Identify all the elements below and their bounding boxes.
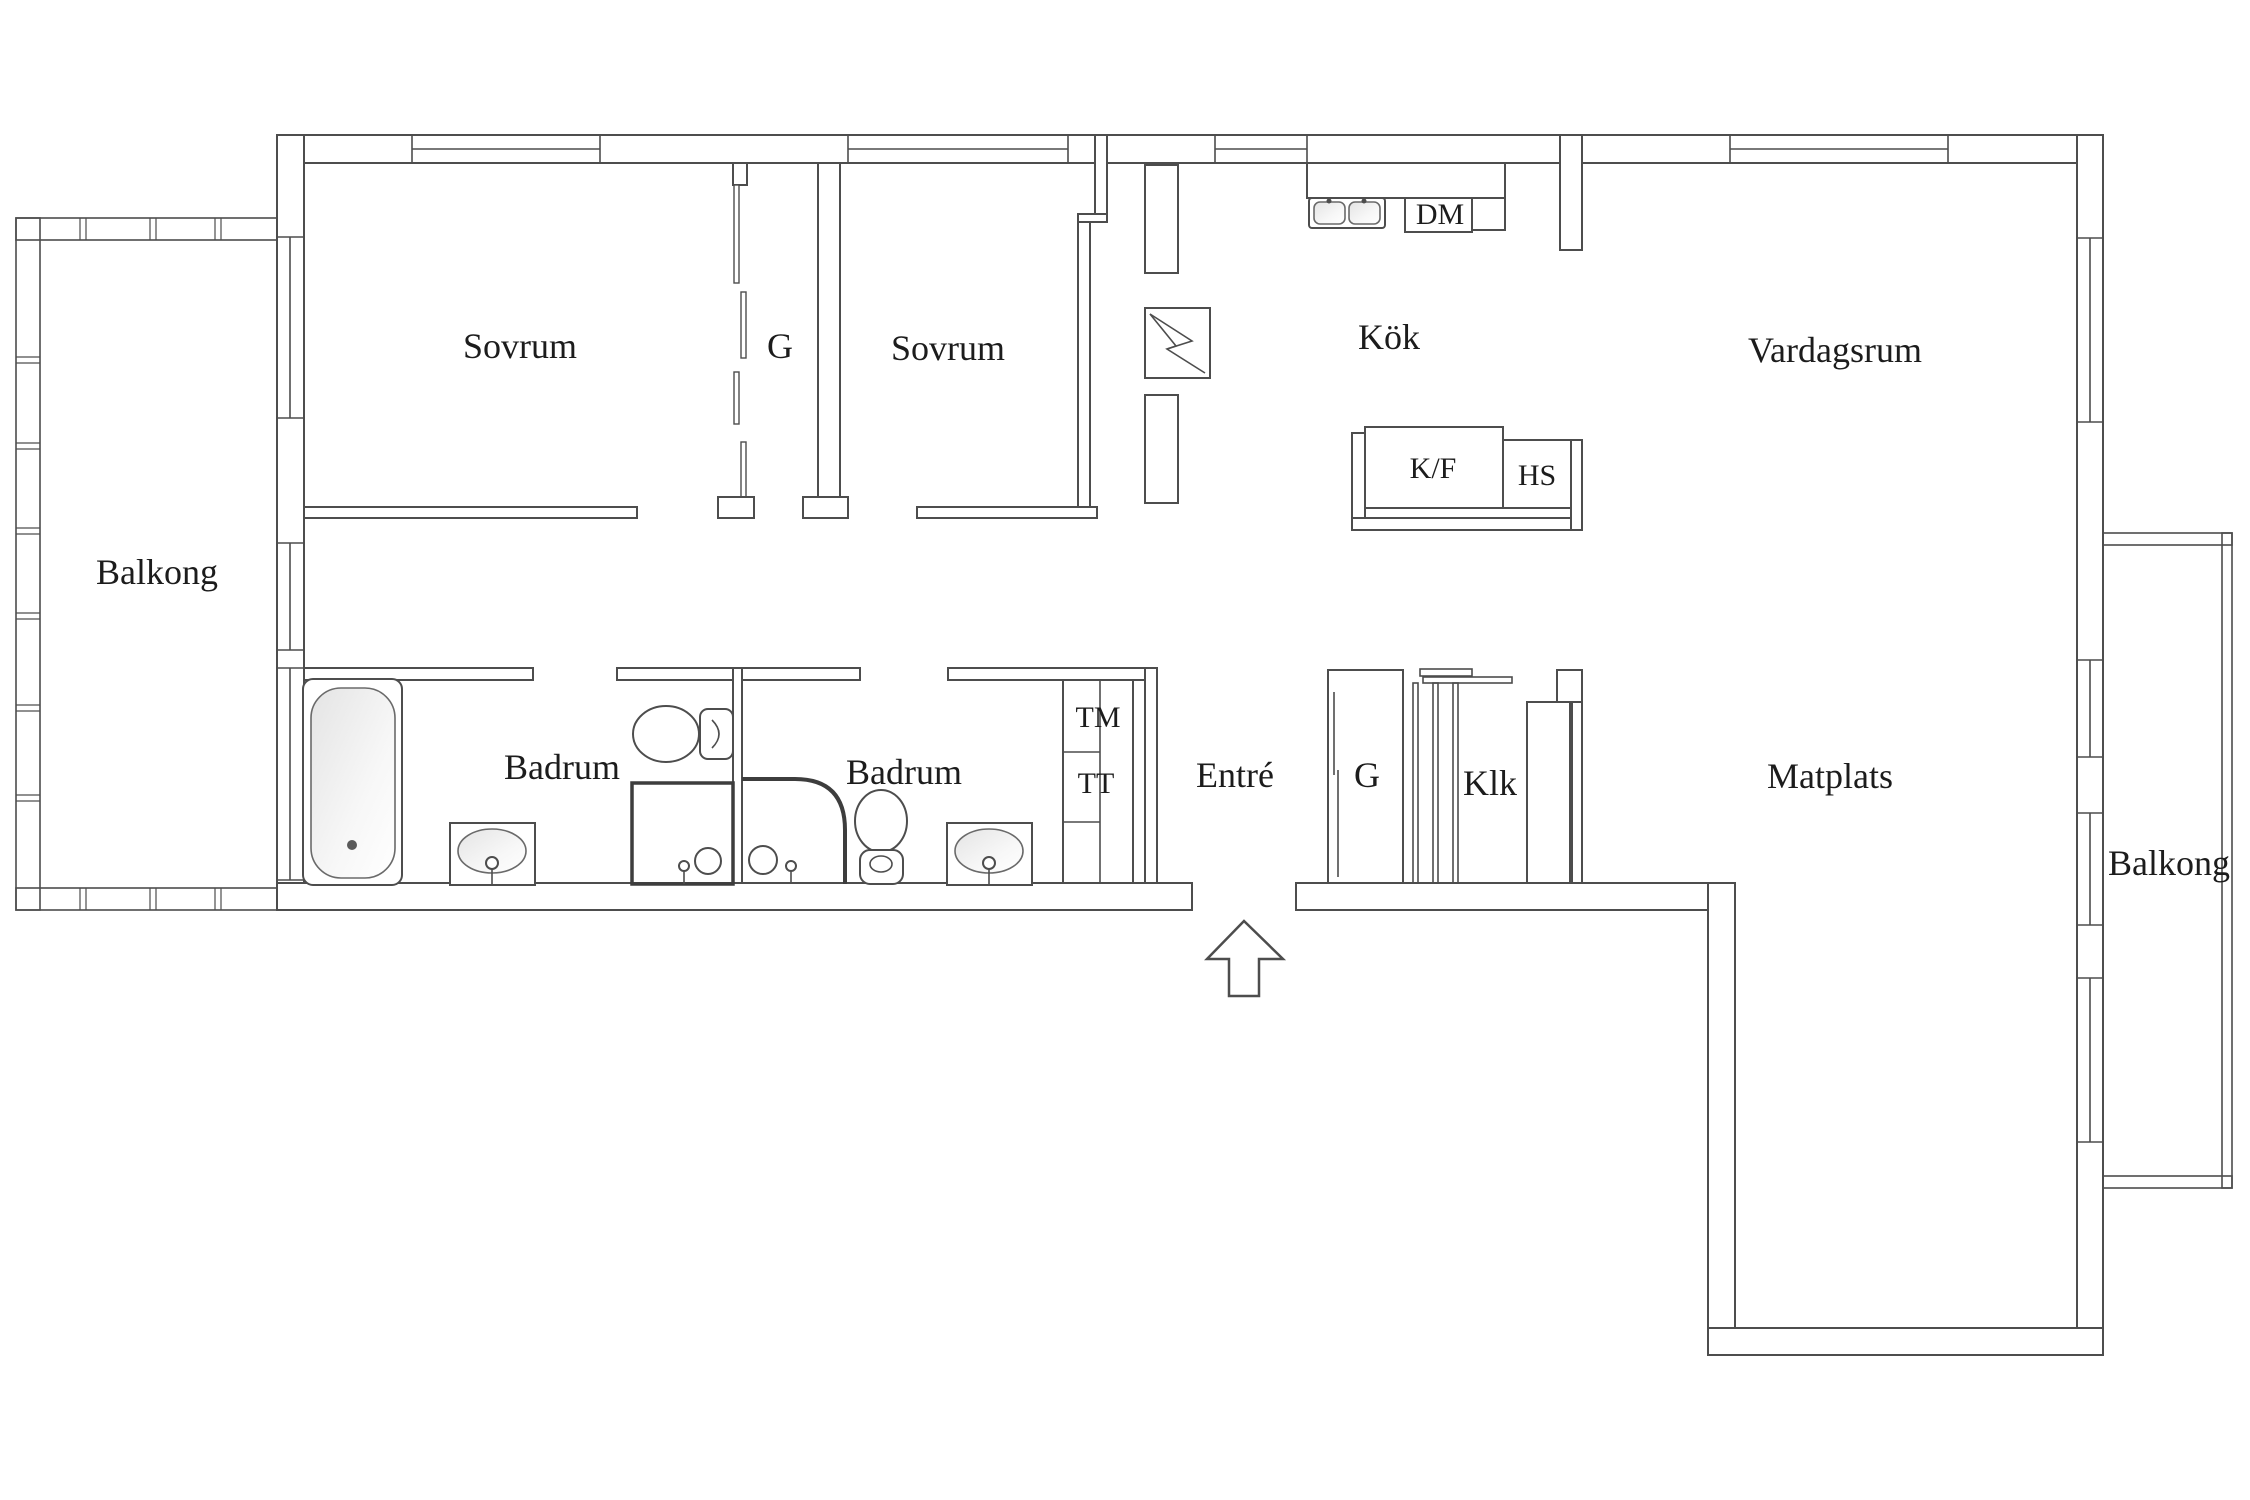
sink-tap: [983, 857, 995, 869]
island-wall-bottom: [1352, 518, 1582, 530]
kitchen-sink: [1309, 198, 1385, 228]
label-sovrum2: Sovrum: [891, 328, 1005, 368]
klk-wall-step: [1557, 670, 1582, 702]
hall-cabinet-lower: [1145, 395, 1178, 503]
shower-tap: [786, 861, 796, 871]
wardrobe-sliding-doors-sovrum1: [734, 185, 746, 508]
label-entre: Entré: [1196, 755, 1274, 795]
wall-sovrum1-g-stub: [733, 163, 747, 185]
label-vardagsrum: Vardagsrum: [1748, 330, 1922, 370]
toilet-badrum2: [855, 790, 907, 884]
wall-sovrum2-notch-joint: [1078, 214, 1107, 222]
label-badrum2: Badrum: [846, 752, 962, 792]
island-wall-left: [1352, 433, 1365, 530]
wall-sovrum2-bottom: [917, 507, 1097, 518]
label-dm: DM: [1416, 198, 1464, 231]
label-g-top: G: [767, 326, 793, 366]
bathtub-drain: [347, 840, 357, 850]
floor-plan-canvas: Balkong Balkong: [0, 0, 2250, 1500]
wall-foot-g: [803, 497, 848, 518]
label-badrum1: Badrum: [504, 747, 620, 787]
electrical-cabinet: [1145, 308, 1210, 378]
closet-klk: Klk: [1413, 669, 1582, 883]
wall-sovrum1-bottom: [304, 507, 637, 518]
shower-badrum1: [632, 783, 733, 884]
wall-kok-vardagsrum-stub: [1560, 135, 1582, 250]
label-sovrum1: Sovrum: [463, 326, 577, 366]
shower-tap: [679, 861, 689, 871]
floor-plan-page: Balkong Balkong: [0, 0, 2250, 1500]
klk-sliding-door-1: [1413, 683, 1418, 883]
label-g-entre: G: [1354, 755, 1380, 795]
hall-cabinet-upper: [1145, 165, 1178, 273]
balcony-left-railing-north: [16, 218, 277, 240]
klk-wardrobe: [1527, 702, 1570, 883]
wall-entre-west: [1145, 668, 1157, 883]
toilet-badrum1: [633, 706, 733, 762]
label-balkong-left: Balkong: [96, 552, 218, 592]
wall-bottom-west: [277, 883, 1192, 910]
wall-extension-left: [1708, 883, 1735, 1355]
windows: [277, 135, 2103, 1142]
entre-area: Entré G Klk: [1196, 669, 1582, 996]
balcony-right: Balkong: [2103, 533, 2232, 1188]
label-hs: HS: [1518, 459, 1556, 492]
balcony-right-railing-south: [2103, 1176, 2232, 1188]
klk-door-rail-2: [1423, 677, 1512, 683]
label-tt: TT: [1078, 767, 1115, 800]
wall-foot-sovrum1: [718, 497, 754, 518]
shower-badrum2: [742, 779, 845, 884]
wall-sovrum2-notch: [1095, 135, 1107, 222]
label-kf: K/F: [1410, 452, 1457, 485]
sink-tap-dot: [1362, 199, 1367, 204]
balcony-left: Balkong: [16, 218, 277, 910]
wall-bottom-mid: [1296, 883, 1708, 910]
sink-tap: [486, 857, 498, 869]
label-klk: Klk: [1463, 763, 1517, 803]
kitchen: DM K/F HS Kök: [1145, 135, 1582, 530]
label-kok: Kök: [1358, 317, 1420, 357]
sink-tap-dot: [1327, 199, 1332, 204]
klk-wall-east: [1572, 702, 1582, 883]
wall-extension-bottom: [1708, 1328, 2103, 1355]
bathroom-1: Badrum: [303, 679, 733, 885]
sink-badrum1: [450, 823, 535, 885]
klk-door-rail-1: [1420, 669, 1472, 676]
island-wall-right: [1571, 440, 1582, 530]
klk-sliding-door-3: [1453, 683, 1458, 883]
bathtub: [303, 679, 402, 885]
kitchen-cabinet-right: [1472, 198, 1505, 230]
interior-walls-bedrooms: [304, 135, 1107, 518]
bathroom-2: TM TT Badrum: [742, 680, 1133, 885]
klk-sliding-door-2: [1433, 683, 1438, 883]
entrance-arrow-icon: [1207, 921, 1283, 996]
kitchen-island: K/F HS: [1352, 427, 1582, 530]
laundry-column: TM TT: [1063, 680, 1133, 883]
wall-g-sovrum2: [818, 163, 840, 518]
wall-badrum2-top-east: [948, 668, 1157, 680]
balcony-right-railing-north: [2103, 533, 2232, 545]
sink-badrum2: [947, 823, 1032, 885]
label-matplats: Matplats: [1767, 756, 1893, 796]
wall-sovrum2-right: [1078, 218, 1090, 518]
kitchen-counter: [1307, 163, 1505, 198]
closet-g-entre: G: [1328, 670, 1403, 883]
balcony-left-railing-west: [16, 218, 40, 910]
label-tm: TM: [1076, 701, 1121, 734]
label-balkong-right: Balkong: [2108, 843, 2230, 883]
balcony-left-railing-south: [16, 888, 277, 910]
